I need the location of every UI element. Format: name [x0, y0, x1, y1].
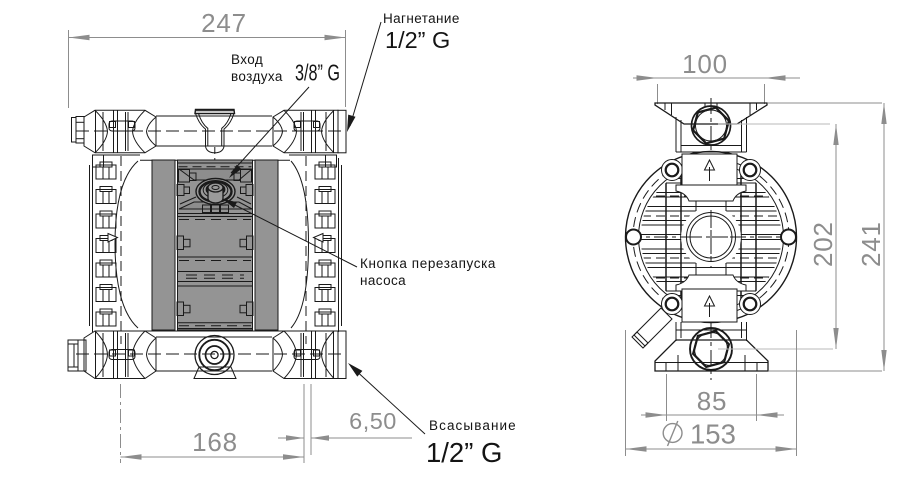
svg-text:241: 241	[856, 221, 886, 267]
svg-text:153: 153	[690, 419, 736, 450]
svg-text:168: 168	[192, 427, 238, 457]
svg-text:насоса: насоса	[360, 273, 406, 288]
svg-text:100: 100	[682, 49, 728, 79]
svg-text:Всасывание: Всасывание	[429, 418, 517, 433]
svg-text:воздуха: воздуха	[231, 69, 283, 84]
svg-text:85: 85	[697, 386, 728, 416]
svg-text:202: 202	[808, 221, 838, 267]
svg-text:6,50: 6,50	[349, 408, 397, 434]
svg-text:3/8” G: 3/8” G	[295, 60, 340, 86]
svg-text:Нагнетание: Нагнетание	[383, 11, 460, 26]
svg-text:247: 247	[201, 8, 247, 38]
svg-text:Вход: Вход	[231, 52, 263, 67]
svg-text:1/2” G: 1/2” G	[426, 437, 502, 468]
svg-text:Кнопка перезапуска: Кнопка перезапуска	[360, 256, 496, 271]
svg-text:1/2” G: 1/2” G	[385, 27, 450, 53]
